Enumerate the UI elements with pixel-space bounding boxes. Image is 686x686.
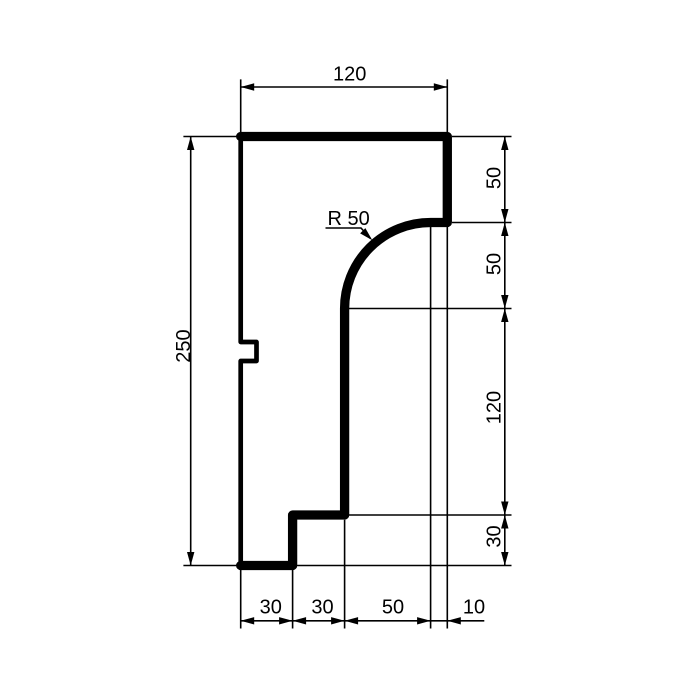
svg-text:30: 30 <box>311 597 333 619</box>
svg-text:30: 30 <box>484 525 506 547</box>
svg-text:10: 10 <box>463 597 485 619</box>
svg-text:120: 120 <box>333 64 366 86</box>
svg-text:50: 50 <box>484 167 506 189</box>
svg-text:120: 120 <box>484 391 506 424</box>
svg-text:50: 50 <box>484 253 506 275</box>
svg-text:50: 50 <box>382 597 404 619</box>
svg-text:30: 30 <box>260 597 282 619</box>
svg-text:R 50: R 50 <box>328 208 370 230</box>
svg-text:250: 250 <box>173 329 195 362</box>
